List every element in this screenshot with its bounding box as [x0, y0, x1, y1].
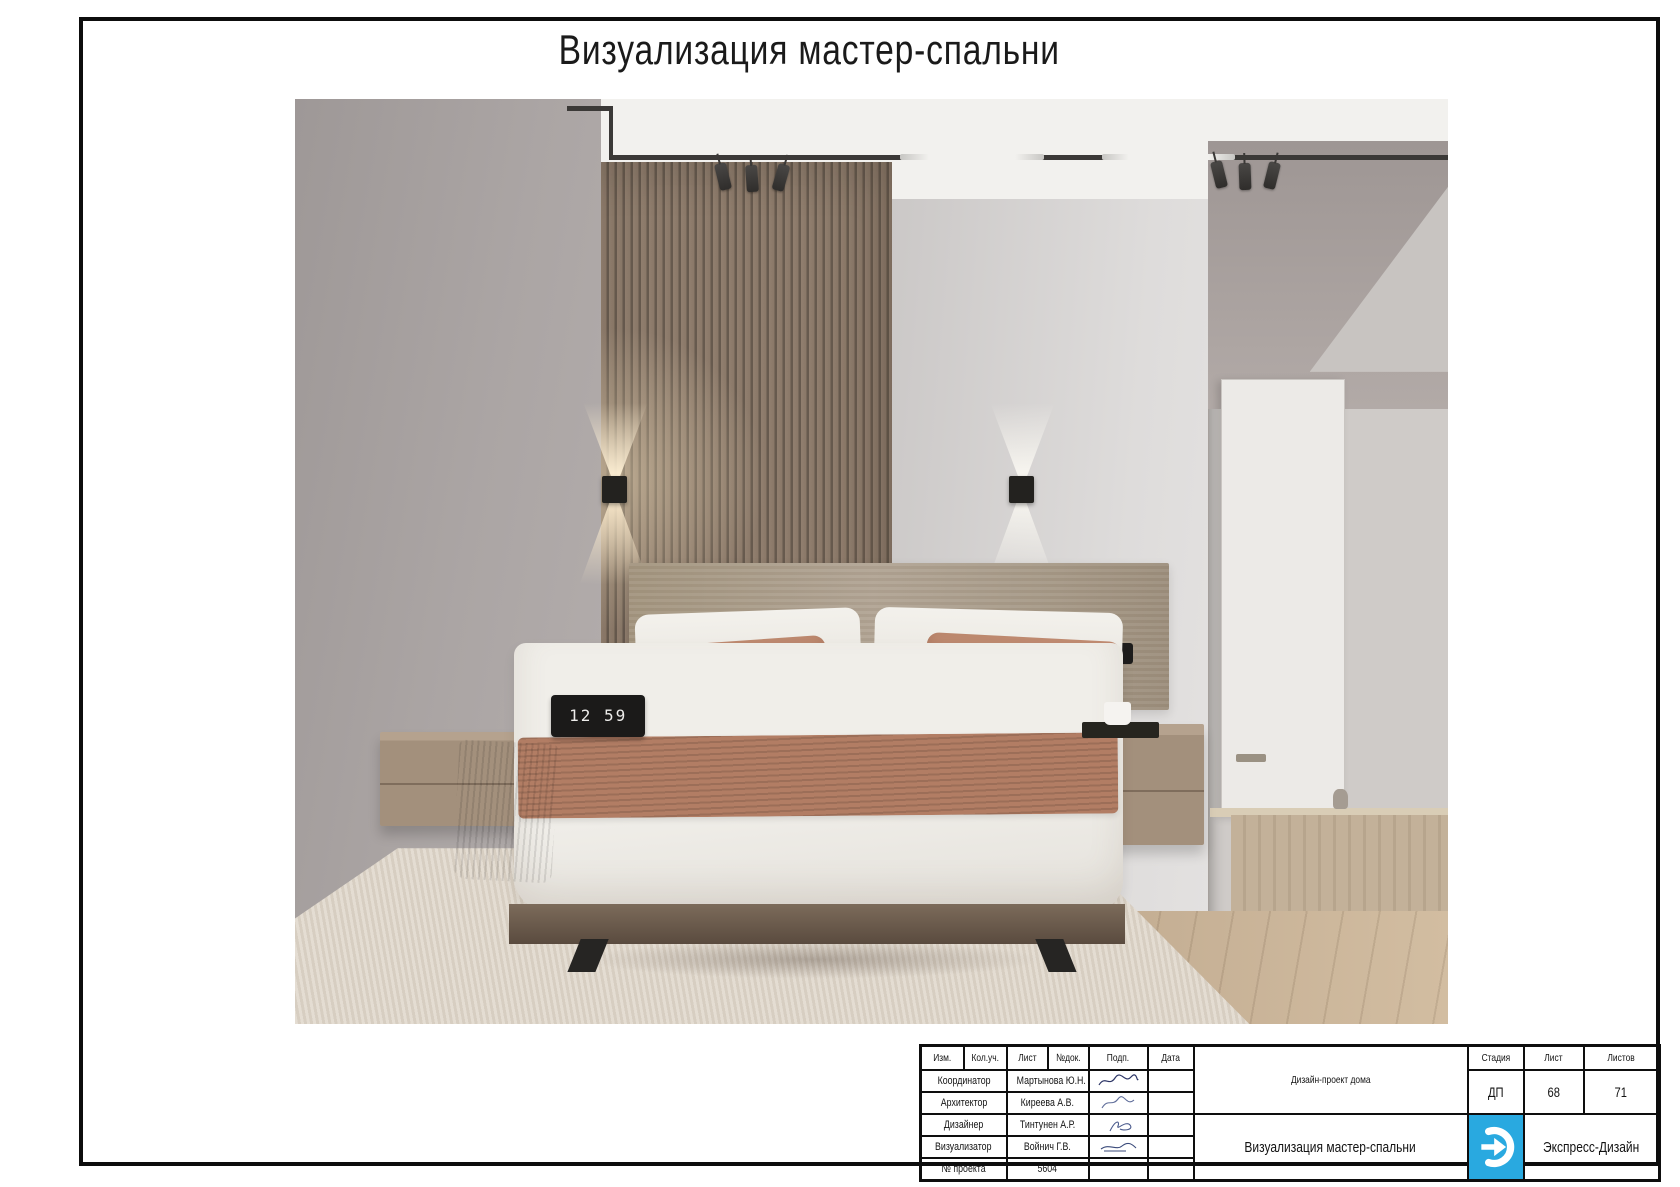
signature-icon	[1096, 1117, 1140, 1133]
stage-label: Стадия	[1468, 1046, 1524, 1071]
name-architect: Киреева А.В.	[1007, 1092, 1089, 1114]
col-dok: №док.	[1048, 1046, 1089, 1071]
role-coordinator: Координатор	[921, 1070, 1007, 1092]
signature-coordinator	[1089, 1070, 1148, 1092]
company-logo	[1468, 1114, 1524, 1181]
track-led-strip	[900, 154, 1044, 160]
sheet-value: 68	[1524, 1070, 1584, 1114]
bed-throw-runner	[517, 733, 1117, 820]
name-designer: Тинтунен А.Р.	[1007, 1114, 1089, 1136]
role-architect: Архитектор	[921, 1092, 1007, 1114]
role-designer: Дизайнер	[921, 1114, 1007, 1136]
track-light-drop	[609, 106, 614, 156]
col-data: Дата	[1148, 1046, 1194, 1071]
page-title-text: Визуализация мастер-спальни	[558, 26, 1059, 74]
signature-icon	[1096, 1095, 1140, 1111]
track-spotlight	[1239, 163, 1252, 190]
track-spotlight	[745, 164, 759, 192]
date-architect	[1148, 1092, 1194, 1114]
date-coordinator	[1148, 1070, 1194, 1092]
flip-clock: 12 59	[551, 695, 646, 738]
project-title: Дизайн-проект дома	[1194, 1046, 1468, 1115]
sheets-label: Листов	[1584, 1046, 1660, 1071]
project-number-date-empty	[1148, 1158, 1194, 1181]
sheet-label: Лист	[1524, 1046, 1584, 1071]
track-light-stub	[567, 106, 613, 111]
sheets-value: 71	[1584, 1070, 1660, 1114]
flip-clock-time: 12 59	[569, 706, 627, 725]
door-handle	[1236, 754, 1266, 762]
col-podp: Подп.	[1089, 1046, 1148, 1071]
role-visualizer: Визуализатор	[921, 1136, 1007, 1158]
cup-on-nightstand	[1104, 702, 1131, 725]
name-visualizer: Войнич Г.В.	[1007, 1136, 1089, 1158]
bedroom-render: 12 59	[295, 99, 1448, 1024]
company-name: Экспресс-Дизайн	[1524, 1114, 1660, 1181]
bed-throw-drape	[453, 739, 559, 883]
col-list: Лист	[1007, 1046, 1048, 1071]
title-block: Изм. Кол.уч. Лист №док. Подп. Дата Дизай…	[919, 1044, 1661, 1182]
date-visualizer	[1148, 1136, 1194, 1158]
wall-sconce-right	[1009, 476, 1034, 503]
signature-icon	[1096, 1139, 1140, 1155]
counter-object	[1333, 789, 1348, 809]
design-sheet: Визуализация мастер-спальни	[0, 0, 1680, 1187]
wall-sconce-left	[602, 476, 627, 503]
project-number-sign-empty	[1089, 1158, 1148, 1181]
role-project-number: № проекта	[921, 1158, 1007, 1181]
date-designer	[1148, 1114, 1194, 1136]
signature-visualizer	[1089, 1136, 1148, 1158]
signature-icon	[1096, 1073, 1140, 1089]
door	[1221, 379, 1346, 816]
signature-architect	[1089, 1092, 1148, 1114]
name-coordinator: Мартынова Ю.Н.	[1007, 1070, 1089, 1092]
express-design-logo-icon	[1474, 1125, 1518, 1169]
page-title: Визуализация мастер-спальни	[79, 26, 1539, 74]
col-koluch: Кол.уч.	[964, 1046, 1007, 1071]
signature-designer	[1089, 1114, 1148, 1136]
project-number-value: 5604	[1007, 1158, 1089, 1181]
col-izm: Изм.	[921, 1046, 964, 1071]
sheet-title: Визуализация мастер-спальни	[1194, 1114, 1468, 1181]
stage-value: ДП	[1468, 1070, 1524, 1114]
